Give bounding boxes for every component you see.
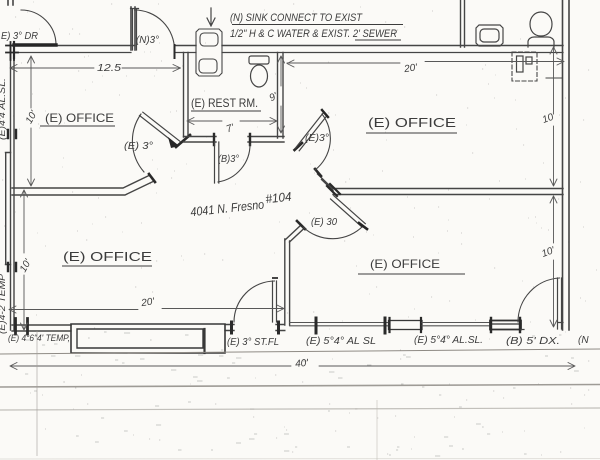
svg-text:(E) OFFICE: (E) OFFICE bbox=[45, 111, 114, 125]
svg-text:(E) 4°6"4' TEMP,: (E) 4°6"4' TEMP, bbox=[8, 333, 70, 343]
svg-text:20': 20' bbox=[403, 62, 420, 75]
svg-text:(B)3°: (B)3° bbox=[218, 154, 239, 165]
svg-text:(E)3°: (E)3° bbox=[305, 133, 329, 144]
svg-text:(E) 5°4° AL SL: (E) 5°4° AL SL bbox=[306, 336, 376, 347]
svg-text:1/2" H & C WATER & EXIST. 2' S: 1/2" H & C WATER & EXIST. 2' SEWER bbox=[230, 28, 397, 40]
svg-text:40': 40' bbox=[295, 358, 310, 370]
svg-text:(B) 5' DX.: (B) 5' DX. bbox=[506, 336, 560, 347]
svg-text:(E) OFFICE: (E) OFFICE bbox=[368, 115, 456, 130]
svg-text:E) 3° DR: E) 3° DR bbox=[1, 31, 38, 42]
svg-text:(E) 30: (E) 30 bbox=[311, 217, 337, 228]
svg-text:(E) OFFICE: (E) OFFICE bbox=[370, 257, 440, 271]
svg-text:(E) OFFICE: (E) OFFICE bbox=[63, 249, 152, 264]
svg-text:(E)4'4 AL.SL.: (E)4'4 AL.SL. bbox=[0, 78, 7, 140]
svg-text:(N: (N bbox=[578, 335, 589, 346]
svg-text:(E) REST RM.: (E) REST RM. bbox=[191, 96, 258, 110]
svg-text:(N)3°: (N)3° bbox=[136, 35, 159, 46]
svg-text:#104: #104 bbox=[265, 190, 292, 207]
svg-text:(E)4-2 TEMP: (E)4-2 TEMP bbox=[0, 274, 7, 334]
svg-text:(E) 3°: (E) 3° bbox=[124, 141, 153, 152]
svg-text:(E) 5°4° AL.SL.: (E) 5°4° AL.SL. bbox=[414, 335, 483, 346]
svg-text:(N) SINK CONNECT TO EXIST: (N) SINK CONNECT TO EXIST bbox=[230, 12, 363, 24]
svg-text:(E) 3° ST.FL: (E) 3° ST.FL bbox=[227, 337, 279, 348]
svg-text:12.5: 12.5 bbox=[97, 63, 122, 74]
svg-text:20': 20' bbox=[140, 296, 157, 309]
